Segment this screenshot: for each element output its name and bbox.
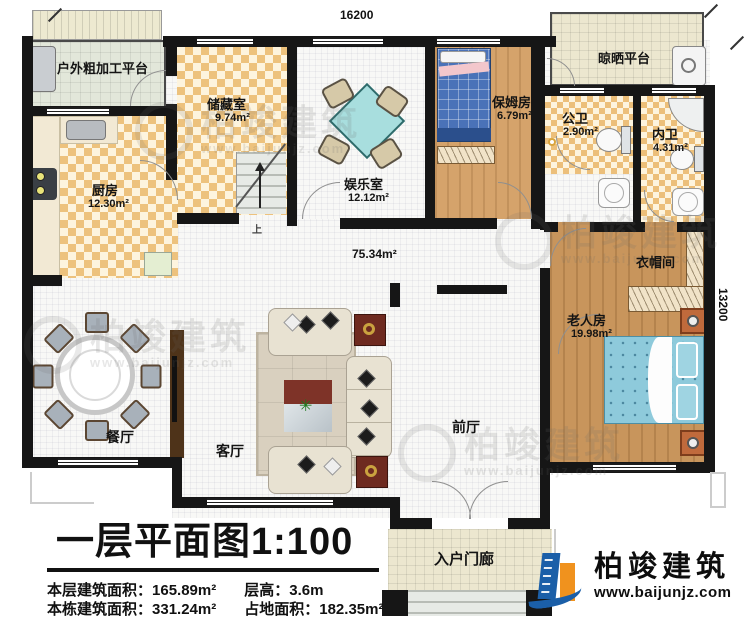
room-area-public-bath: 2.90m² [563, 127, 598, 138]
plan-graphic: 层高：3.6m [244, 579, 323, 600]
side-table-ring [365, 465, 377, 477]
total-area-label: 本栋建筑面积： [47, 601, 152, 618]
room-label-nanny-room: 保姆房 [492, 96, 531, 109]
pergola [32, 10, 162, 40]
wall [22, 36, 33, 468]
chair [33, 365, 54, 389]
window [47, 107, 109, 116]
wall [166, 104, 177, 180]
elder-pillow [676, 384, 698, 420]
brand-logo-icon [528, 551, 584, 613]
wall [166, 36, 177, 76]
room-area-elder-room: 19.98m² [571, 329, 612, 340]
stove-burner [36, 186, 45, 195]
wardrobe-side [686, 226, 704, 290]
room-label-game-room: 娱乐室 [344, 178, 383, 191]
dimension-tick [730, 36, 744, 50]
window [197, 37, 253, 46]
wall [22, 275, 62, 286]
height-value: 3.6m [289, 582, 323, 599]
nanny-wardrobe [437, 146, 495, 164]
title-divider [47, 568, 379, 572]
plan-graphic [593, 467, 676, 468]
window [58, 458, 138, 467]
room-area-storage: 9.74m² [215, 113, 250, 124]
stairs-arrow-line [259, 170, 261, 208]
window [560, 86, 604, 95]
brand-logo: 柏竣建筑 www.baijunjz.com [528, 551, 731, 613]
plan-scale: 1:100 [251, 521, 353, 563]
wall [437, 285, 507, 294]
kitchen-sink [66, 120, 106, 140]
room-label-cloakroom: 衣帽间 [636, 256, 675, 269]
exterior-outline [30, 472, 94, 504]
basin-bowl [604, 183, 624, 203]
wall [425, 36, 435, 229]
wall [287, 36, 297, 226]
dimension-tick [704, 4, 718, 18]
sofa-top [268, 308, 352, 356]
room-label-storage: 储藏室 [207, 98, 246, 111]
toilet-tank [621, 126, 631, 154]
wall [340, 218, 430, 229]
plant: ✳ [299, 396, 312, 416]
side-table-ring [363, 323, 375, 335]
room-label-private-bath: 内卫 [652, 128, 678, 141]
window [593, 463, 676, 472]
room-label-front-hall: 前厅 [452, 420, 480, 434]
chair [141, 365, 162, 389]
plan-graphic [197, 41, 253, 42]
wall [704, 85, 715, 473]
stove-burner [36, 172, 45, 181]
porch-step-block-left [382, 590, 408, 616]
plan-graphic: 占地面积：182.35m² [244, 598, 383, 619]
toilet-bowl [596, 128, 622, 152]
window [652, 86, 696, 95]
exterior-outline [710, 472, 726, 508]
brand-url: www.baijunjz.com [594, 584, 731, 601]
room-label-kitchen: 厨房 [92, 184, 118, 197]
nightstand-lamp [687, 437, 699, 449]
room-label-elder-room: 老人房 [567, 314, 606, 327]
floor-area-value: 165.89m² [152, 582, 216, 599]
plan-graphic [652, 90, 696, 91]
plan-graphic: 本栋建筑面积：331.24m² [47, 598, 216, 619]
total-area-value: 331.24m² [152, 601, 216, 618]
brand-name: 柏竣建筑 [594, 551, 731, 584]
outdoor-sink [30, 46, 56, 92]
porch-steps [406, 590, 526, 616]
plan-graphic [207, 502, 333, 503]
footprint-label: 占地面积： [244, 601, 319, 618]
page-title: 一层平面图1:100 [56, 510, 353, 565]
stats-row-1: 本层建筑面积：165.89m² 层高：3.6m [47, 579, 323, 600]
washer-door [681, 58, 696, 73]
room-label-dining: 餐厅 [106, 430, 134, 444]
plan-graphic [560, 90, 604, 91]
window [437, 37, 500, 46]
elder-pillow [676, 342, 698, 378]
plan-graphic [313, 41, 383, 42]
plan-graphic [527, 582, 583, 610]
plan-graphic [47, 111, 109, 112]
room-label-drying-platform: 晾晒平台 [598, 52, 650, 65]
wall [540, 268, 550, 468]
elder-bed-sheet [648, 337, 672, 423]
room-area-private-bath: 4.31m² [653, 143, 688, 154]
footprint-value: 182.35m² [319, 601, 383, 618]
room-area-hall: 75.34m² [352, 248, 397, 260]
stairs-arrow-head [255, 162, 265, 171]
wall [590, 222, 645, 232]
wall [430, 218, 497, 229]
room-label-porch: 入户门廊 [434, 552, 494, 567]
basin-bowl [678, 192, 698, 212]
wall-lamp [548, 138, 556, 146]
room-label-outdoor-platform: 户外粗加工平台 [57, 62, 148, 75]
room-label-living: 客厅 [216, 444, 244, 458]
stats-row-2: 本栋建筑面积：331.24m² 占地面积：182.35m² [47, 598, 383, 619]
wall [390, 518, 432, 529]
nanny-pillow [440, 51, 486, 63]
floor-area-label: 本层建筑面积： [47, 582, 152, 599]
wall [390, 283, 400, 307]
stairs-up-label: 上 [252, 226, 262, 236]
plan-graphic [437, 41, 500, 42]
window [207, 498, 333, 507]
dimension-top: 16200 [340, 8, 373, 22]
wall [540, 222, 550, 230]
dimension-right: 13200 [716, 288, 730, 321]
tv [172, 356, 177, 422]
nanny-bed-fold [437, 128, 491, 141]
room-area-nanny-room: 6.79m² [497, 111, 532, 122]
wall [531, 36, 545, 229]
floor-plan: ✳ [0, 0, 750, 627]
room-label-public-bath: 公卫 [562, 112, 588, 125]
toilet-tank [694, 146, 704, 172]
nightstand-lamp [687, 315, 699, 327]
dining-table-inner [69, 349, 121, 401]
room-area-game-room: 12.12m² [348, 193, 389, 204]
plan-title-text: 一层平面图 [56, 521, 251, 563]
plan-graphic: 柏竣建筑 www.baijunjz.com [594, 551, 731, 601]
window [313, 37, 383, 46]
wall [677, 222, 715, 232]
kitchen-fridge [144, 252, 172, 276]
height-label: 层高： [244, 582, 289, 599]
wall [177, 213, 239, 224]
wall [633, 96, 641, 222]
plan-graphic [58, 462, 138, 463]
plan-graphic: 本层建筑面积：165.89m² [47, 579, 216, 600]
chair [85, 312, 109, 333]
room-area-kitchen: 12.30m² [88, 199, 129, 210]
